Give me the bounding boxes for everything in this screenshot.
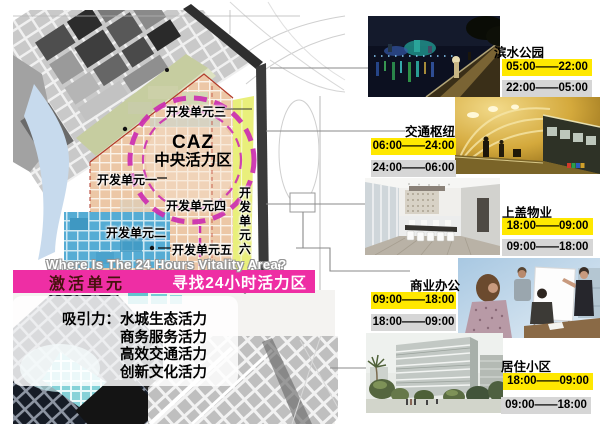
- time-badge-active: 05:00——22:00: [502, 59, 592, 76]
- time-badge-active: 09:00——18:00: [371, 292, 456, 309]
- banner-right-label: 寻找24小时活力区: [172, 271, 307, 293]
- label-unit6: 开发单元六: [238, 186, 252, 256]
- attraction-item: 商务服务活力: [120, 330, 207, 348]
- time-badge-inactive: 09:00——18:00: [501, 397, 591, 414]
- label-unit5: 开发单元五: [172, 241, 232, 258]
- time-badge-active: 06:00——24:00: [371, 138, 456, 155]
- attraction-box: 吸引力： 水城生态活力 商务服务活力 高效交通活力 创新文化活力: [12, 296, 238, 386]
- time-badge-inactive: 24:00——06:00: [371, 160, 456, 177]
- vitality-area-infographic: 开发单元三 开发单元一 开发单元四 开发单元二 开发单元五 开发单元六 CAZ …: [0, 0, 600, 424]
- photo-office-meeting: [458, 258, 600, 338]
- vitality-question-overlay: Where Is The 24 Hours Vitality Area?: [46, 257, 346, 272]
- time-badge-inactive: 22:00——05:00: [502, 80, 592, 97]
- photo-podium-interior: [365, 178, 500, 255]
- caz-title: CAZ 中央活力区: [149, 133, 237, 169]
- photo-night-waterfront: [368, 16, 500, 97]
- photo-residential-render: [366, 333, 503, 413]
- attraction-item: 高效交通活力: [120, 347, 207, 365]
- attraction-title: 吸引力：: [62, 312, 120, 386]
- time-badge-inactive: 09:00——18:00: [502, 239, 593, 256]
- activation-banner: 激活单元 寻找24小时活力区: [13, 270, 315, 293]
- label-unit3: 开发单元三: [166, 103, 226, 120]
- label-unit4: 开发单元四: [166, 197, 226, 214]
- time-badge-inactive: 18:00——09:00: [371, 314, 456, 331]
- time-badge-active: 18:00——09:00: [502, 218, 593, 235]
- photo-metro-station: [455, 97, 600, 174]
- banner-left-label: 激活单元: [49, 270, 125, 294]
- label-unit1: 开发单元一: [97, 171, 157, 188]
- road-vertical: [256, 63, 269, 290]
- attraction-item: 水城生态活力: [120, 312, 207, 330]
- label-unit2: 开发单元二: [106, 224, 166, 241]
- time-badge-active: 18:00——09:00: [503, 373, 593, 390]
- attraction-item: 创新文化活力: [120, 365, 207, 383]
